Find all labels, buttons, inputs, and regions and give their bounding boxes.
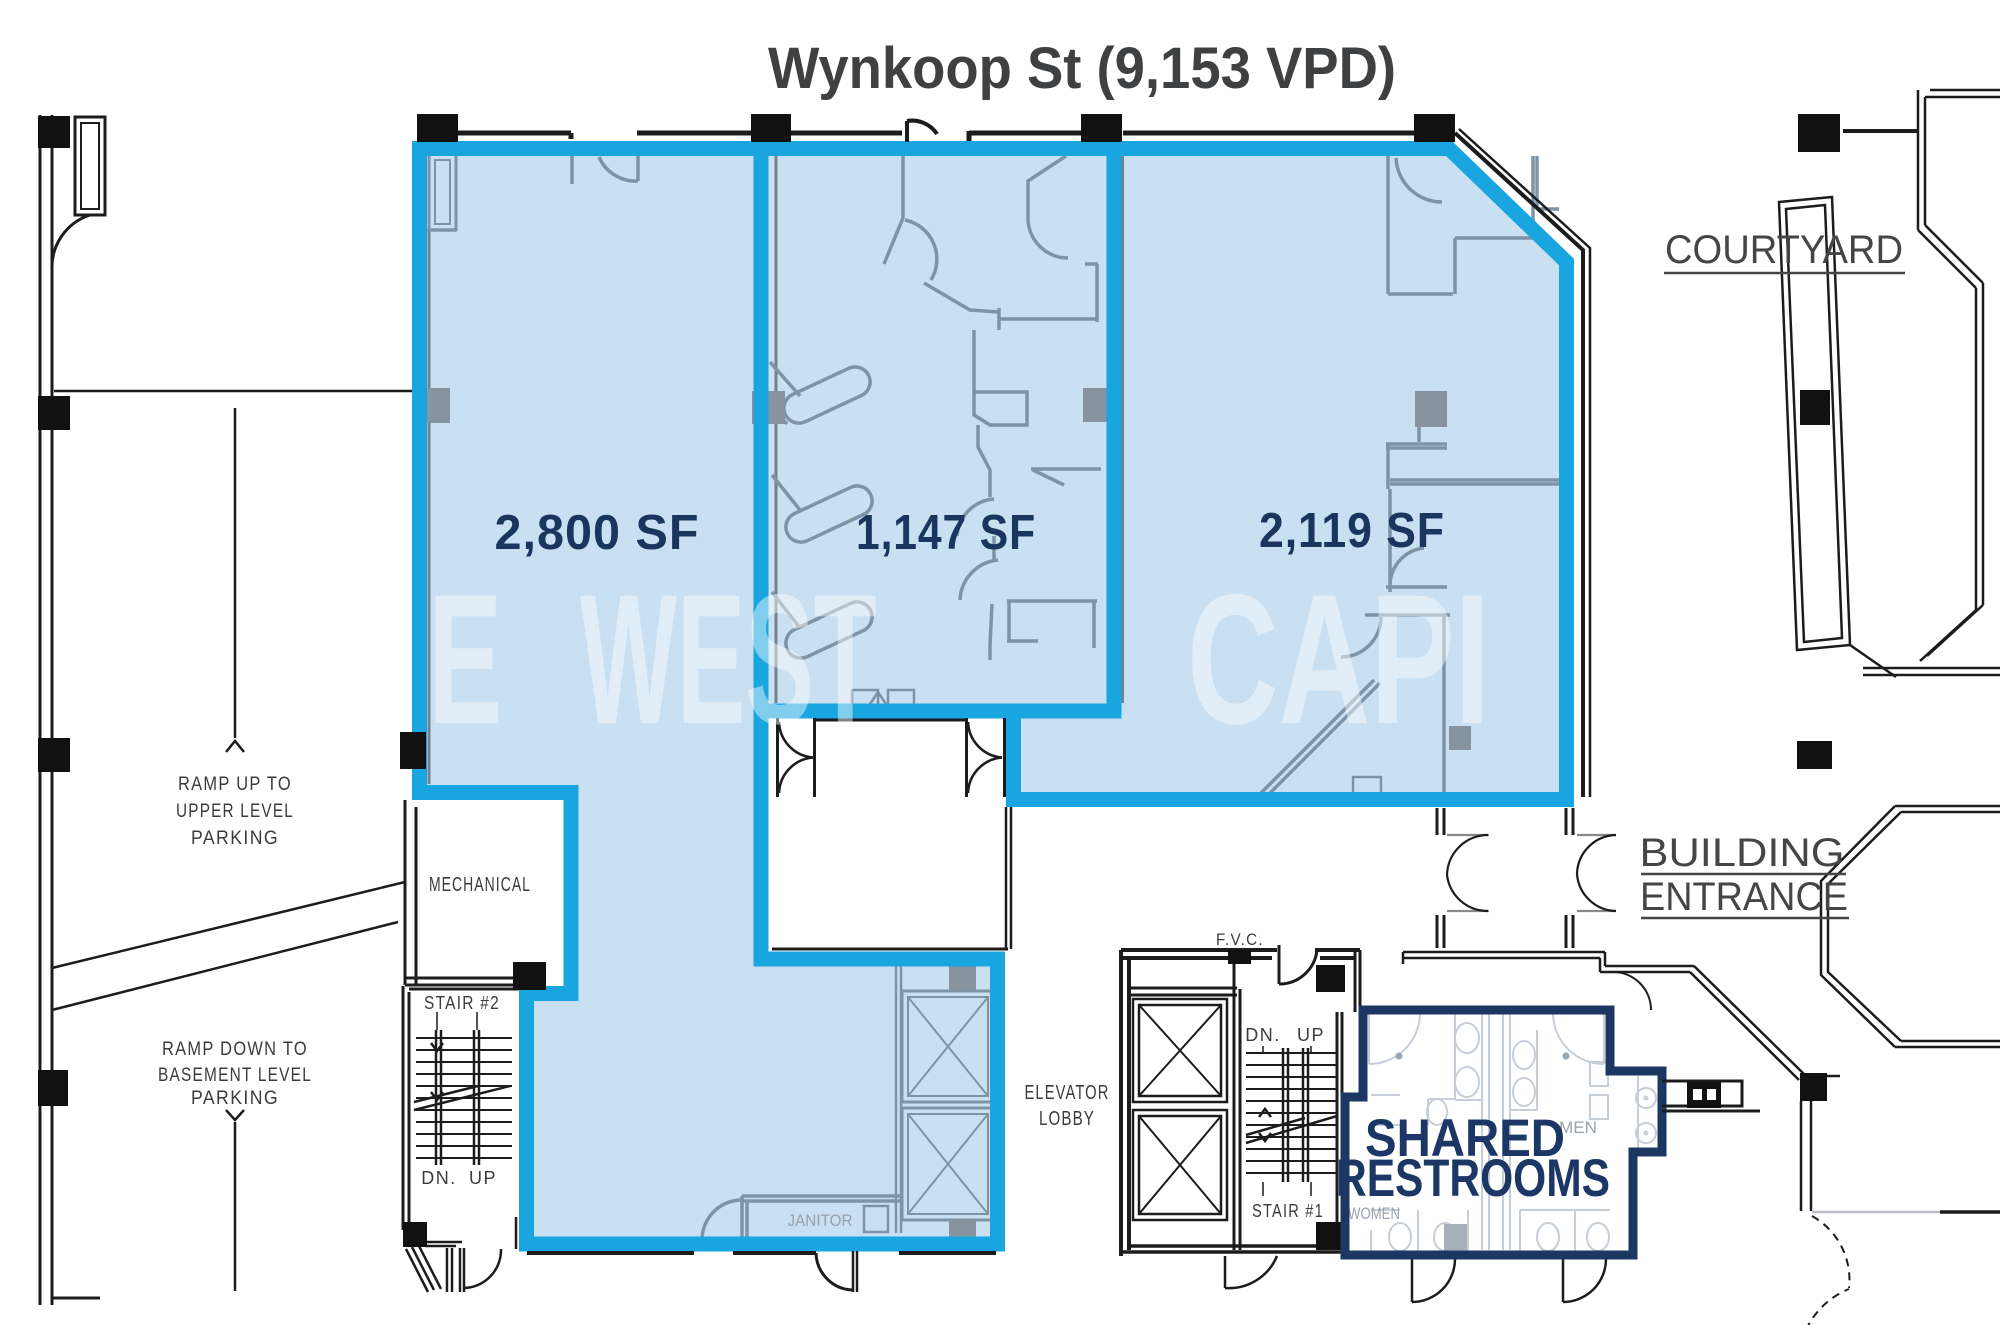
svg-text:2,119 SF: 2,119 SF: [1259, 504, 1445, 558]
svg-text:PARKING: PARKING: [191, 1088, 279, 1109]
svg-text:LOBBY: LOBBY: [1039, 1108, 1095, 1130]
svg-text:STAIR #2: STAIR #2: [424, 993, 500, 1013]
svg-text:E: E: [428, 557, 502, 763]
svg-text:1,147 SF: 1,147 SF: [856, 506, 1036, 560]
svg-text:RESTROOMS: RESTROOMS: [1336, 1149, 1610, 1208]
svg-text:CAPI: CAPI: [1187, 557, 1490, 763]
svg-text:WEST: WEST: [580, 557, 877, 763]
svg-text:ENTRANCE: ENTRANCE: [1640, 875, 1848, 919]
svg-text:Wynkoop St (9,153 VPD): Wynkoop St (9,153 VPD): [768, 36, 1396, 101]
svg-text:DN.: DN.: [1245, 1025, 1281, 1045]
svg-text:STAIR #1: STAIR #1: [1252, 1201, 1324, 1221]
svg-text:BASEMENT LEVEL: BASEMENT LEVEL: [158, 1065, 312, 1086]
svg-text:2,800 SF: 2,800 SF: [495, 506, 700, 560]
svg-text:UP: UP: [469, 1168, 497, 1188]
svg-text:RAMP DOWN TO: RAMP DOWN TO: [162, 1039, 308, 1060]
svg-text:RAMP UP TO: RAMP UP TO: [178, 774, 292, 795]
svg-text:JANITOR: JANITOR: [788, 1211, 853, 1230]
svg-text:BUILDING: BUILDING: [1640, 831, 1845, 875]
svg-text:PARKING: PARKING: [191, 828, 279, 849]
svg-text:F.V.C.: F.V.C.: [1216, 930, 1264, 949]
svg-text:UP: UP: [1297, 1025, 1325, 1045]
svg-text:DN.: DN.: [421, 1168, 457, 1188]
svg-text:MECHANICAL: MECHANICAL: [429, 874, 531, 896]
svg-text:COURTYARD: COURTYARD: [1665, 228, 1903, 272]
svg-text:UPPER LEVEL: UPPER LEVEL: [176, 801, 294, 822]
svg-text:ELEVATOR: ELEVATOR: [1025, 1082, 1110, 1104]
